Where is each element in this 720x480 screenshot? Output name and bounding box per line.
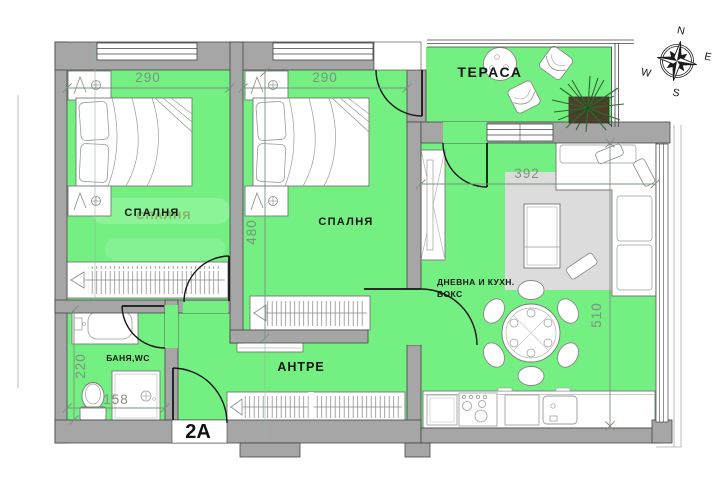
window-terrace-slider xyxy=(487,124,553,141)
opening-bedroom1 xyxy=(183,301,228,313)
wardrobe-bedroom-2 xyxy=(250,296,370,330)
opening-bathroom xyxy=(165,305,178,348)
kitchen-sink xyxy=(543,396,577,424)
unit-label: 2A xyxy=(185,421,211,443)
opening-living-terrace xyxy=(443,122,487,143)
fridge xyxy=(427,395,457,425)
opening-hall-living xyxy=(407,289,421,345)
dim-living-width: 392 xyxy=(514,166,540,181)
dim-bathroom-width: 158 xyxy=(103,392,129,407)
living-label-line1: ДНЕВНА И КУХН. xyxy=(437,277,515,287)
hall-label: АНТРЕ xyxy=(277,360,324,374)
stove xyxy=(459,393,497,426)
dim-bedroom1-width: 290 xyxy=(135,70,161,85)
wardrobe-bedroom-1 xyxy=(67,262,228,298)
cabinet xyxy=(505,395,539,425)
toilet xyxy=(80,383,106,421)
watermark-blob xyxy=(105,238,225,260)
kitchen-counter xyxy=(423,388,655,428)
dim-living-depth: 510 xyxy=(589,302,604,328)
wardrobe-hall xyxy=(227,392,405,422)
coffee-table xyxy=(524,204,560,268)
bathroom-label: БАНЯ,WC xyxy=(106,353,150,363)
window-bedroom-1 xyxy=(97,43,197,60)
window-bedroom-2 xyxy=(273,43,373,60)
floor-plan: 290 290 480 392 510 220 158 СПАЛНЯ СПАЛН… xyxy=(0,0,720,480)
dim-bathroom-depth: 220 xyxy=(73,353,88,379)
tv-unit xyxy=(421,150,445,260)
bedroom2-label: СПАЛНЯ xyxy=(318,216,373,228)
dim-bedroom2-depth: 480 xyxy=(244,219,259,245)
floor-plan-canvas: 290 290 480 392 510 220 158 СПАЛНЯ СПАЛН… xyxy=(0,0,720,480)
bedroom1-label: СПАЛНЯ xyxy=(124,207,179,219)
terrace-label: ТЕРАСА xyxy=(457,64,522,80)
window-living xyxy=(656,144,668,422)
dim-bedroom2-width: 290 xyxy=(312,70,338,85)
living-label-line2: БОКС xyxy=(437,289,463,299)
opening-bedroom2-terrace xyxy=(374,42,421,70)
